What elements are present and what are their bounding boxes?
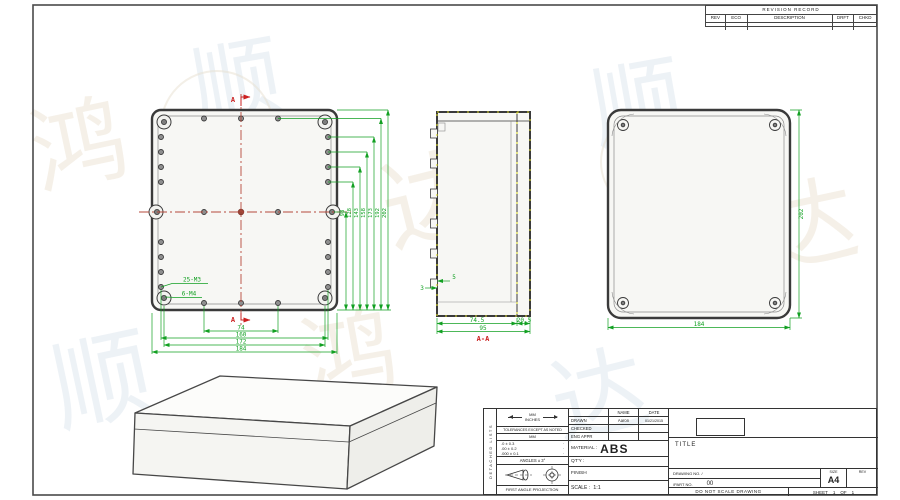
revision-col-eco: ECO (726, 15, 748, 22)
tol-row-3: .000 ± 0.1 (501, 451, 519, 456)
drawing-no-label: DRAWING NO. / (669, 469, 820, 479)
drawn-label: DRAWN (569, 417, 609, 425)
section-marker-bottom: A (231, 313, 250, 324)
first-angle-target-icon (543, 466, 561, 484)
dim-184: 184 (236, 346, 247, 353)
sheet-of-label: OF (840, 490, 846, 495)
revision-col-rev: REV (706, 15, 726, 22)
revision-col-description: DESCRIPTION (748, 15, 833, 22)
revision-col-chkd: CHKD (854, 15, 876, 22)
dim-74-5: 74.5 (470, 317, 485, 324)
title-cell: TITLE (669, 438, 878, 469)
back-view: 184 202 (608, 110, 805, 330)
dim-back-202: 202 (798, 208, 805, 219)
logo-box (696, 418, 745, 436)
front-view: A A 74 160 172 184 (139, 94, 391, 354)
dim-v5: 173 (368, 208, 374, 218)
dim-v3: 143 (354, 208, 360, 218)
scale-row: SCALE : 1:1 (569, 481, 669, 494)
dim-v4: 158 (361, 208, 367, 218)
part-no-value: 00 (707, 481, 714, 487)
projection-symbols (496, 465, 569, 486)
rev-cell: REV (847, 469, 878, 488)
isometric-view (133, 376, 437, 489)
scale-label: SCALE : (571, 485, 590, 491)
sheet-no: 1 (833, 490, 836, 495)
dim-v1: 98 (340, 210, 346, 217)
finish-label: FINISH (569, 467, 669, 481)
first-angle-cone-icon (505, 467, 535, 483)
section-marker-top: A (231, 96, 250, 106)
revision-record-table: REVISION RECORD REV ECO DESCRIPTION DRFT… (705, 5, 877, 27)
section-marker-bottom-label: A (231, 316, 236, 324)
dim-3: 3 (420, 285, 424, 292)
size-cell: SIZE A4 (821, 469, 847, 488)
dim-160: 160 (236, 332, 247, 339)
drawn-name: Aaron (609, 417, 639, 425)
material-value: ABS (600, 442, 628, 456)
dim-95: 95 (479, 325, 487, 332)
material-row: MATERIAL : ABS (569, 441, 669, 457)
dim-v7: 202 (382, 208, 388, 218)
date-header: DATE (639, 409, 669, 417)
name-header: NAME (609, 409, 639, 417)
angles-tolerance: ANGLES ± 3° (496, 457, 569, 465)
sheet-label: SHEET (813, 490, 828, 495)
units-cell: MM INCHES (496, 409, 569, 427)
thread-label-6-m4: 6-M4 (182, 291, 197, 298)
do-not-scale-note: DO NOT SCALE DRAWING (669, 488, 789, 496)
checked-label: CHECKED (569, 425, 609, 433)
drawing-no-cell: DRAWING NO. / /PART NO. 00 (669, 469, 821, 488)
rev-label: REV (847, 469, 878, 475)
drawn-date: 01/21/2015 (639, 417, 669, 425)
eng-appr-label: ENG APPR (569, 433, 609, 441)
thread-label-25-m3: 25-M3 (183, 277, 201, 284)
size-value: A4 (821, 475, 846, 485)
dim-v2: 128 (347, 208, 353, 218)
dim-74: 74 (237, 325, 245, 332)
scale-value: 1:1 (593, 485, 601, 491)
dim-back-184: 184 (694, 321, 705, 328)
sheet-total: 1 (852, 490, 855, 495)
title-block: DETACHED LISTS MM INCHES TOLERANCES EXCE… (483, 408, 877, 495)
section-marker-top-label: A (231, 96, 236, 104)
dim-v6: 192 (375, 208, 381, 218)
section-view-label: A-A (477, 335, 490, 343)
dim-172: 172 (236, 339, 247, 346)
tolerance-table: MM .0 ± 0.3· .00 ± 0.2· .000 ± 0.1· (496, 434, 569, 457)
logo-cell (669, 409, 878, 438)
dim-arrow-right-icon (543, 417, 557, 418)
dim-20-5: 20.5 (517, 317, 532, 324)
part-no-label: /PART NO. (673, 482, 693, 487)
units-inches: INCHES (525, 417, 540, 422)
dim-arrow-left-icon (508, 417, 522, 418)
section-view: 5 3 74.5 20.5 95 A-A (420, 112, 531, 343)
dim-5: 5 (452, 274, 456, 281)
side-strip-label: DETACHED LISTS (488, 424, 493, 479)
tol-mark: · (563, 451, 564, 456)
sheet-cell: SHEET 1 OF 1 (789, 488, 878, 496)
projection-label: FIRST ANGLE PROJECTION (496, 486, 569, 494)
tolerances-note: TOLERANCES EXCEPT AS NOTED (496, 427, 569, 434)
revision-col-drft: DRFT (833, 15, 855, 22)
material-label: MATERIAL : (571, 446, 597, 452)
qty-label: QT'Y : (569, 457, 669, 467)
revision-empty-row (706, 23, 876, 30)
revision-record-title: REVISION RECORD (706, 6, 876, 15)
